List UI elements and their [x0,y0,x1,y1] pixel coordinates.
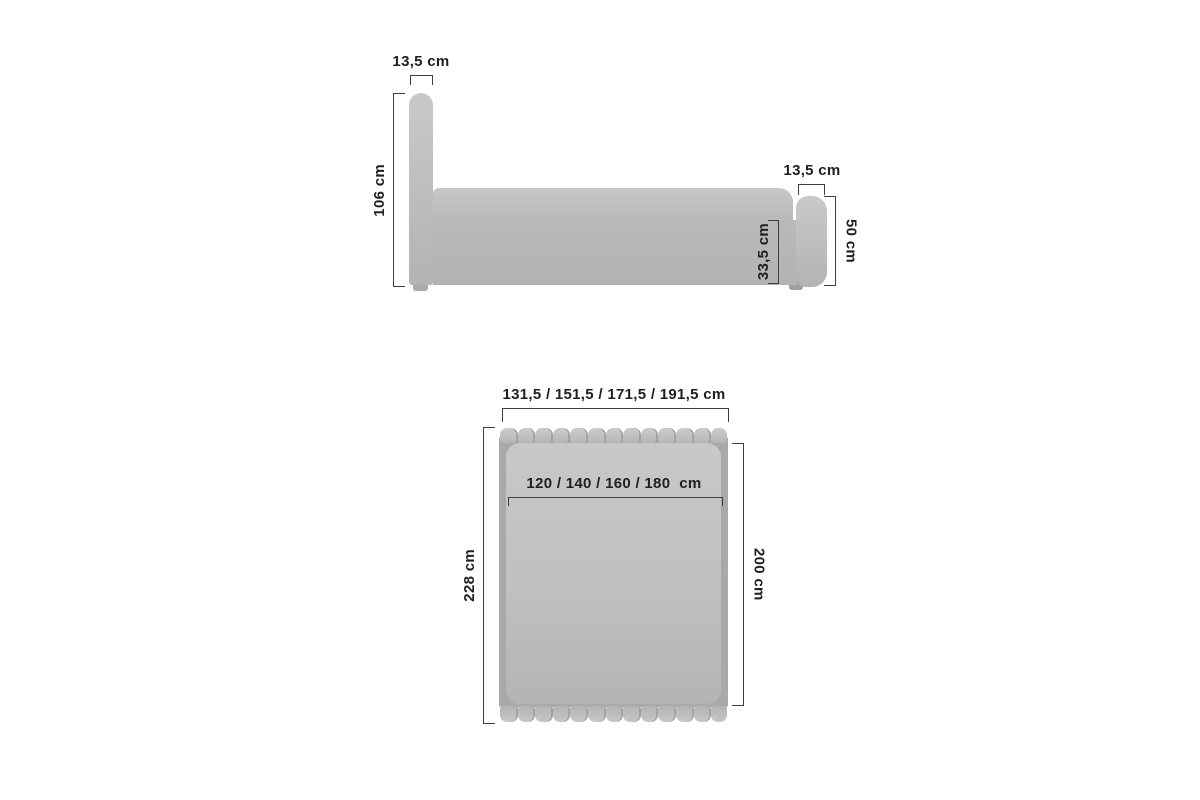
upholstery-channel-segment [658,706,674,722]
upholstery-channel-segment [606,428,622,443]
top-view: 131,5 / 151,5 / 171,5 / 191,5 cm 120 / 1… [0,330,1200,800]
upholstery-channel-segment [518,706,534,722]
footboard-height-tick-top [824,196,835,197]
overall-length-label: 228 cm [461,549,478,602]
upholstery-channel-segment [606,706,622,722]
upholstery-channel-segment [518,428,534,443]
footboard-thickness-bracket [798,184,825,195]
mattress-width-line [508,497,723,506]
side-view: 13,5 cm 106 cm 13,5 cm 50 cm 33,5 cm [0,0,1200,330]
upholstery-channel-segment [553,428,569,443]
mattress-width-label: 120 / 140 / 160 / 180 cm [494,475,734,492]
headboard-height-tick-top [394,93,405,94]
upholstery-channel-segment [535,706,551,722]
upholstery-channel-segment [694,706,710,722]
upholstery-channel-segment [676,706,692,722]
overall-length-tick-top [484,427,495,428]
mattress-side [433,188,793,220]
upholstery-channel-segment [500,428,516,443]
upholstery-channel-segment [588,428,604,443]
frame-height-line [778,220,779,284]
headboard-height-label: 106 cm [371,164,388,217]
mattress-length-tick-top [732,443,743,444]
footboard-band [500,706,727,722]
upholstery-channel-segment [711,706,727,722]
overall-length-label-wrap: 228 cm [457,427,481,724]
headboard-side [409,93,433,285]
headboard-thickness-label: 13,5 cm [361,53,481,70]
upholstery-channel-segment [694,428,710,443]
headboard-band [500,428,727,443]
mattress-length-tick-bottom [732,705,743,706]
upholstery-channel-segment [711,428,727,443]
headboard-height-label-wrap: 106 cm [367,93,391,287]
upholstery-channel-segment [623,428,639,443]
frame-height-label-wrap: 33,5 cm [751,220,775,284]
upholstery-channel-segment [570,428,586,443]
upholstery-channel-segment [641,706,657,722]
footboard-height-label-wrap: 50 cm [838,196,864,286]
footboard-height-label: 50 cm [843,219,860,263]
mattress-length-line [743,443,744,706]
upholstery-channel-segment [535,428,551,443]
footboard-height-tick-bottom [824,285,835,286]
upholstery-channel-segment [570,706,586,722]
upholstery-channel-segment [676,428,692,443]
overall-length-tick-bottom [484,723,495,724]
headboard-height-line [393,93,394,287]
upholstery-channel-segment [553,706,569,722]
mattress-length-label-wrap: 200 cm [746,443,772,706]
upholstery-channel-segment [500,706,516,722]
footboard-thickness-label: 13,5 cm [752,162,872,179]
headboard-height-tick-bottom [394,286,405,287]
footboard-side [796,196,827,287]
bed-frame-side [433,220,797,285]
overall-width-bracket [502,408,729,422]
frame-height-label: 33,5 cm [755,223,772,280]
headboard-thickness-bracket [410,75,433,85]
upholstery-channel-segment [658,428,674,443]
overall-length-line [483,427,484,724]
footboard-height-line [835,196,836,286]
upholstery-channel-segment [623,706,639,722]
upholstery-channel-segment [641,428,657,443]
bed-dimension-diagram: 13,5 cm 106 cm 13,5 cm 50 cm 33,5 cm [0,0,1200,800]
upholstery-channel-segment [588,706,604,722]
mattress-length-label: 200 cm [751,548,768,601]
overall-width-label: 131,5 / 151,5 / 171,5 / 191,5 cm [474,386,754,403]
